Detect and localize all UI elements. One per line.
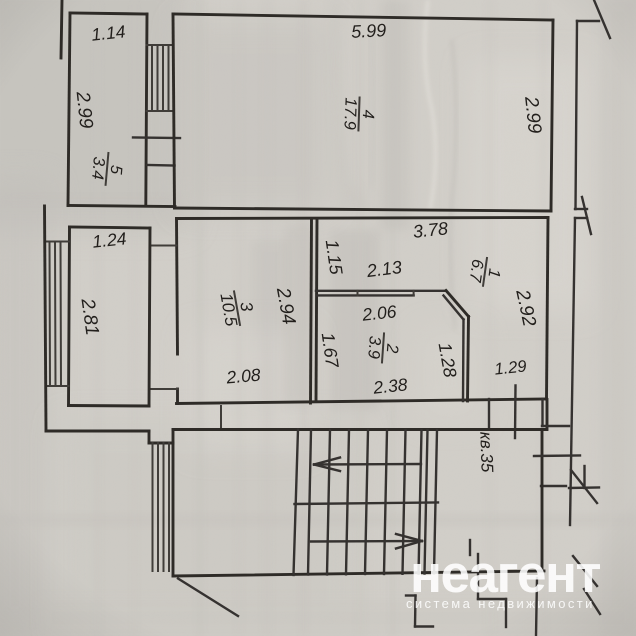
svg-text:3.78: 3.78	[412, 218, 449, 242]
svg-text:3.9: 3.9	[364, 335, 384, 359]
svg-text:4: 4	[359, 109, 377, 119]
svg-text:2.99: 2.99	[520, 95, 545, 135]
svg-text:1.24: 1.24	[91, 228, 127, 251]
svg-text:1.14: 1.14	[90, 21, 126, 44]
svg-text:5.99: 5.99	[351, 20, 387, 42]
svg-text:система недвижимости: система недвижимости	[406, 596, 595, 611]
svg-text:2.38: 2.38	[371, 374, 408, 398]
svg-text:3.4: 3.4	[88, 156, 108, 180]
svg-text:6.7: 6.7	[465, 258, 486, 284]
svg-text:2.99: 2.99	[72, 90, 97, 130]
svg-text:2.08: 2.08	[225, 365, 262, 388]
svg-text:2: 2	[383, 342, 402, 353]
svg-text:кв.35: кв.35	[476, 431, 496, 473]
svg-text:1.29: 1.29	[494, 357, 528, 378]
svg-text:17.9: 17.9	[340, 97, 359, 130]
svg-text:2.06: 2.06	[360, 301, 397, 325]
